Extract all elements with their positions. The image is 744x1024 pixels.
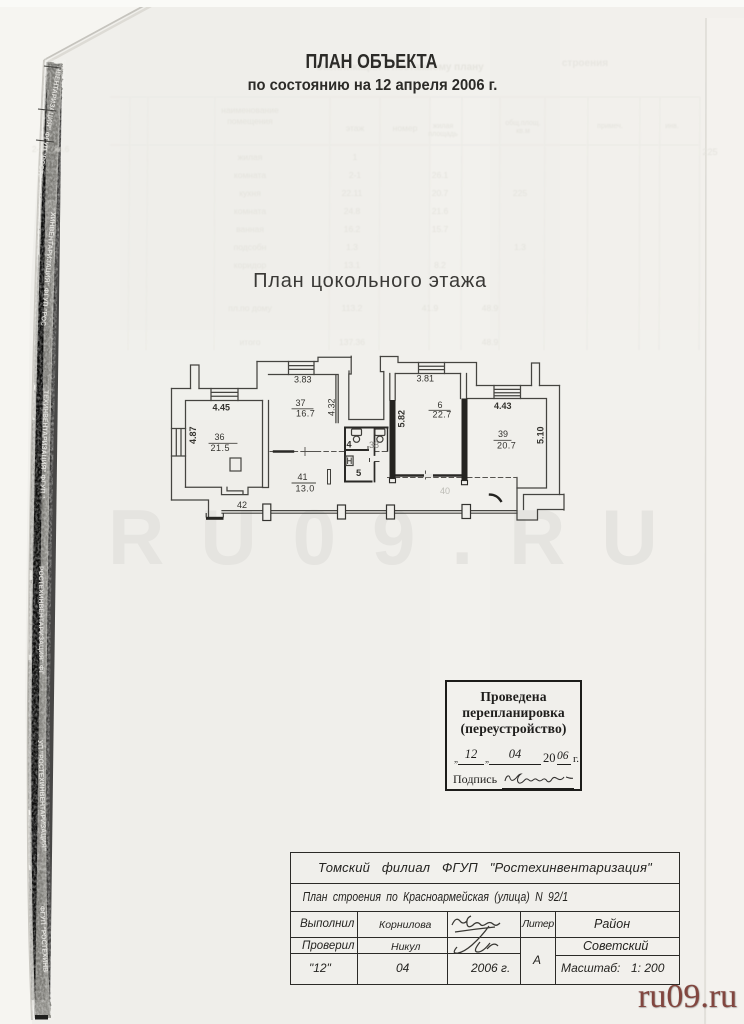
- svg-text:22.7: 22.7: [433, 410, 452, 420]
- svg-text:38: 38: [369, 440, 379, 450]
- svg-text:4.43: 4.43: [494, 401, 512, 411]
- svg-text:3.81: 3.81: [417, 374, 435, 384]
- svg-text:5.82: 5.82: [397, 410, 407, 428]
- svg-text:4.32: 4.32: [327, 398, 337, 416]
- svg-text:20.7: 20.7: [497, 441, 516, 451]
- svg-text:36: 36: [215, 432, 225, 442]
- svg-text:40: 40: [440, 486, 450, 496]
- svg-text:3.83: 3.83: [294, 375, 312, 385]
- svg-text:42: 42: [237, 500, 247, 510]
- svg-text:4.87: 4.87: [188, 426, 198, 444]
- svg-text:41: 41: [298, 472, 308, 482]
- svg-text:21.5: 21.5: [211, 443, 231, 453]
- svg-text:4: 4: [347, 440, 352, 450]
- svg-text:5.10: 5.10: [536, 426, 546, 444]
- svg-text:6: 6: [438, 400, 443, 410]
- svg-text:5: 5: [356, 468, 362, 479]
- svg-text:13.0: 13.0: [296, 484, 315, 494]
- svg-text:39: 39: [498, 429, 508, 439]
- svg-text:37: 37: [296, 398, 306, 408]
- svg-text:16.7: 16.7: [296, 409, 315, 419]
- svg-text:4.45: 4.45: [213, 403, 231, 413]
